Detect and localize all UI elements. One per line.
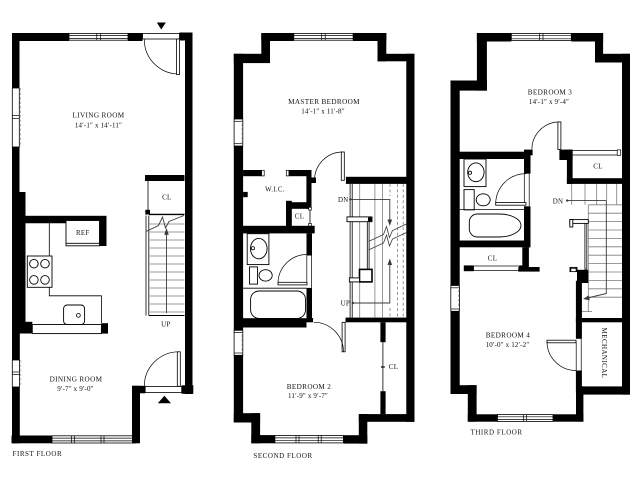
svg-text:W.I.C.: W.I.C.: [265, 187, 285, 194]
svg-text:UP: UP: [341, 300, 350, 307]
svg-text:MASTER BEDROOM: MASTER BEDROOM: [288, 98, 360, 106]
svg-text:BEDROOM 4: BEDROOM 4: [486, 332, 531, 340]
svg-text:14′-1″ x 14′-11″: 14′-1″ x 14′-11″: [75, 122, 122, 130]
svg-text:DN: DN: [553, 198, 564, 205]
svg-text:11′-9″ x 9′-7″: 11′-9″ x 9′-7″: [288, 392, 328, 400]
svg-text:LIVING ROOM: LIVING ROOM: [73, 112, 125, 120]
svg-text:14′-1″ x 11′-8″: 14′-1″ x 11′-8″: [301, 108, 345, 116]
svg-text:CL: CL: [593, 164, 602, 171]
svg-text:FIRST FLOOR: FIRST FLOOR: [13, 450, 63, 458]
svg-text:DN: DN: [338, 197, 349, 204]
svg-text:10′-0″ x 12′-2″: 10′-0″ x 12′-2″: [486, 341, 530, 349]
svg-text:SECOND FLOOR: SECOND FLOOR: [253, 452, 312, 460]
svg-text:9′-7″ x 9′-0″: 9′-7″ x 9′-0″: [57, 385, 94, 393]
svg-text:UP: UP: [161, 322, 170, 329]
svg-text:BEDROOM 2: BEDROOM 2: [287, 383, 332, 391]
svg-text:THIRD FLOOR: THIRD FLOOR: [471, 429, 523, 437]
svg-text:REF: REF: [76, 230, 90, 237]
svg-text:CL: CL: [162, 195, 171, 202]
svg-text:CL: CL: [389, 364, 398, 371]
svg-text:CL: CL: [295, 214, 304, 221]
svg-text:MECHANICAL: MECHANICAL: [600, 328, 608, 379]
svg-text:CL: CL: [488, 256, 497, 263]
svg-text:14′-1″ x 9′-4″: 14′-1″ x 9′-4″: [529, 98, 569, 106]
svg-text:BEDROOM 3: BEDROOM 3: [528, 89, 573, 97]
svg-text:DINING ROOM: DINING ROOM: [50, 376, 103, 384]
